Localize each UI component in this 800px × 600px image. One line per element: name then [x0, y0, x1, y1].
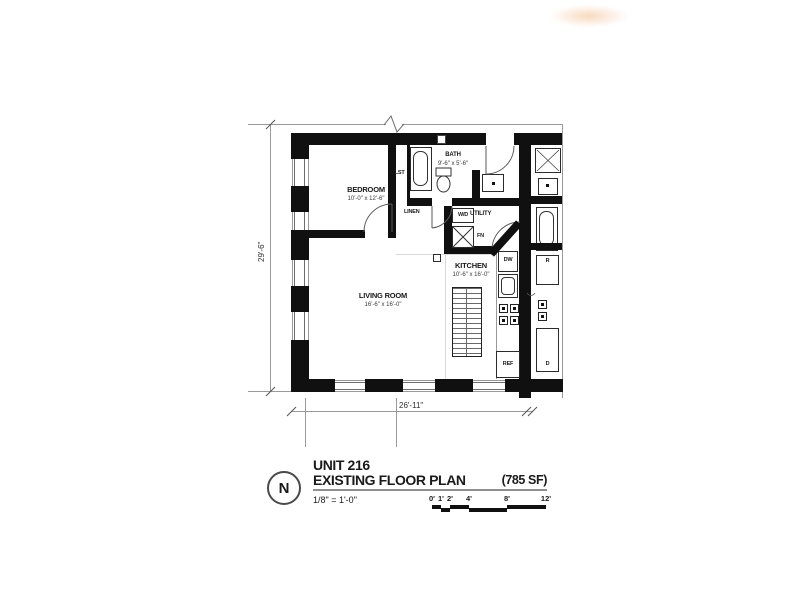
room-dims-living-room: 16'-6" x 16'-0" — [348, 302, 418, 308]
scale-tick-0: 0' — [429, 495, 435, 503]
scale-bar-segment — [507, 505, 546, 508]
title-rule — [313, 489, 547, 491]
furnace-x-icon — [453, 227, 473, 247]
room-label-bath: BATH — [436, 152, 470, 158]
shower-x-icon — [537, 150, 559, 171]
room-dims-bath: 9'-6" x 5'-6" — [428, 161, 478, 167]
unit-title: UNIT 216 — [313, 458, 370, 472]
plan-title: EXISTING FLOOR PLAN — [313, 473, 466, 487]
north-label: N — [279, 480, 290, 497]
scale-tick-1: 1' — [438, 495, 444, 503]
entry-door-arc — [486, 146, 514, 174]
bath-door-arc — [432, 206, 452, 228]
room-dims-kitchen: 10'-6" x 16'-0" — [446, 272, 496, 278]
room-dims-bedroom: 10'-0" x 12'-6" — [336, 196, 396, 202]
area-label: (785 SF) — [460, 474, 547, 487]
dim-tick — [287, 407, 537, 416]
room-label-linen: LINEN — [404, 210, 420, 216]
room-label-bedroom: BEDROOM — [336, 186, 396, 194]
scale-tick-2: 2' — [447, 495, 453, 503]
scale-bar-segment — [450, 505, 469, 508]
room-label-living-room: LIVING ROOM — [348, 292, 418, 300]
plan-linework — [0, 0, 800, 600]
north-arrow: N — [267, 471, 301, 505]
room-label-closet: CLST — [391, 171, 405, 177]
scale-tick-12: 12' — [541, 495, 551, 503]
scale-label: 1/8" = 1'-0" — [313, 496, 357, 505]
scale-tick-8: 8' — [504, 495, 510, 503]
scale-bar-segment — [441, 509, 450, 512]
utility-chamfer-wall — [491, 223, 519, 254]
scale-bar-segment — [432, 505, 441, 508]
room-label-kitchen: KITCHEN — [446, 262, 496, 270]
dim-tick — [266, 120, 275, 396]
scale-tick-4: 4' — [466, 495, 472, 503]
switch-symbol-icon — [527, 293, 535, 296]
scale-bar-segment — [469, 509, 507, 512]
room-label-utility: UTILITY — [470, 211, 491, 217]
toilet-bowl — [437, 176, 450, 192]
floor-plan-sheet: 29'-6" 26'-11" W/D FN DW — [0, 0, 800, 600]
toilet-tank — [436, 168, 451, 176]
bedroom-door-arc — [364, 204, 392, 232]
